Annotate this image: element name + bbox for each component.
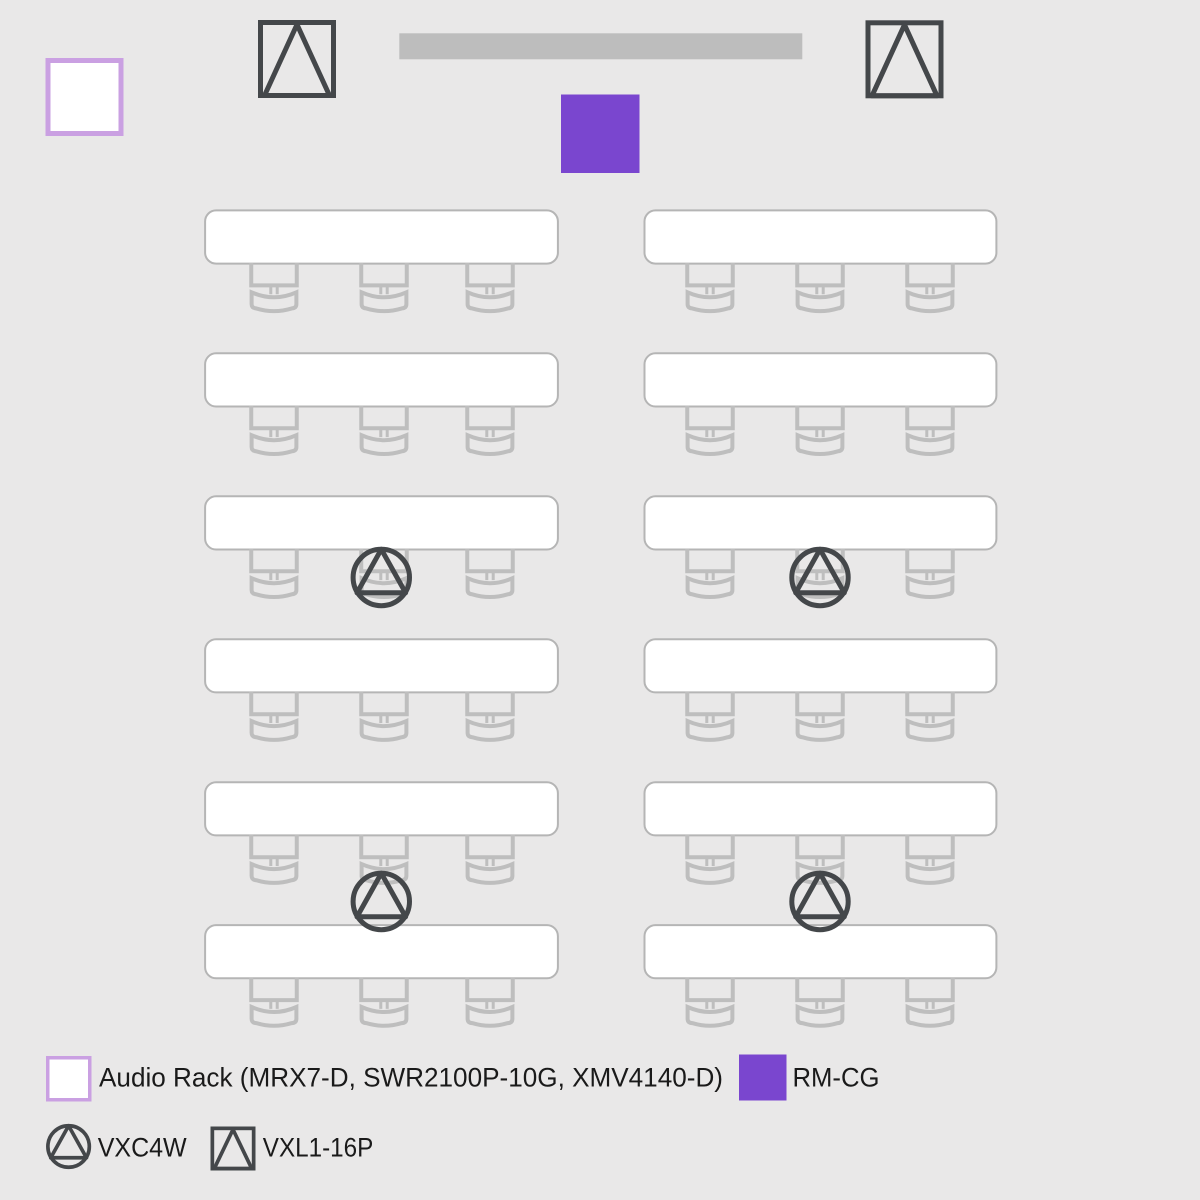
svg-text:VXL1-16P: VXL1-16P <box>263 1133 374 1163</box>
svg-text:Audio Rack (MRX7-D, SWR2100P-1: Audio Rack (MRX7-D, SWR2100P-10G, XMV414… <box>99 1063 723 1093</box>
svg-text:RM-CG: RM-CG <box>793 1063 880 1093</box>
svg-text:VXC4W: VXC4W <box>98 1133 187 1163</box>
